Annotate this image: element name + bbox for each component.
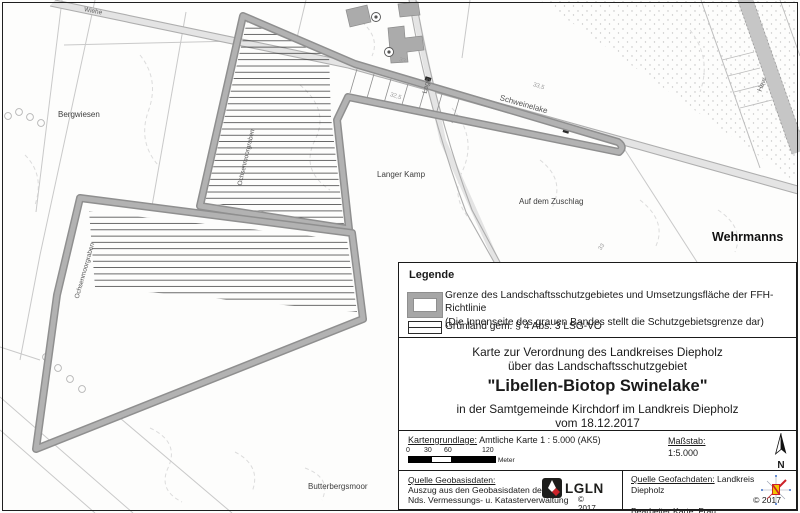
- lsg-band-legend-symbol: [408, 293, 442, 317]
- gruenland-legend-symbol: [408, 321, 442, 334]
- map-basis-label: Kartengrundlage:: [408, 435, 477, 445]
- lgln-logo-text: LGLN: [565, 482, 604, 496]
- legend-box: Legende Grenze des Landschaftsschutzgebi…: [398, 262, 797, 338]
- place-label-butterbergsmoor: Butterbergsmoor: [308, 482, 368, 491]
- legend-band-line1: Grenze des Landschaftsschutzgebietes und…: [445, 289, 796, 316]
- lgln-copyright: © 2017: [578, 495, 604, 513]
- place-label-langer-kamp: Langer Kamp: [377, 170, 425, 179]
- scale-tick: 30: [424, 447, 432, 454]
- scale-bar-graphic: [408, 456, 496, 463]
- editor-label: Bearbeiter Karte:: [631, 506, 696, 513]
- lgln-logo-icon: [542, 478, 562, 498]
- place-label-wehrmanns: Wehrmanns: [712, 230, 783, 244]
- scale-ratio-label: Maßstab:: [668, 435, 706, 447]
- legend-title: Legende: [409, 269, 454, 281]
- title-line2: über das Landschaftsschutzgebiet: [399, 359, 796, 373]
- lgln-logo: LGLN © 2017: [542, 478, 604, 498]
- compass-rose-icon: [759, 473, 793, 507]
- scale-ratio: Maßstab: 1:5.000: [668, 435, 706, 459]
- place-label-auf-dem-zuschlag: Auf dem Zuschlag: [519, 197, 583, 206]
- scale-tick: 120: [482, 447, 494, 454]
- tree-symbols: [5, 109, 86, 393]
- title-line1: Karte zur Verordnung des Landkreises Die…: [399, 345, 796, 359]
- map-basis-value: Amtliche Karte 1 : 5.000 (AK5): [477, 435, 601, 445]
- sources-divider: [622, 471, 623, 509]
- sources-box: Quelle Geobasisdaten: Auszug aus den Geo…: [398, 470, 797, 510]
- scale-bar: 0 30 60 120 Meter: [408, 447, 528, 469]
- map-sheet: Bergwiesen Langer Kamp Auf dem Zuschlag …: [0, 0, 800, 513]
- legend-gruenland-text: Grünland gem. § 4 Abs. 3 LSG-VO: [445, 321, 602, 332]
- geofach-label: Quelle Geofachdaten:: [631, 474, 715, 484]
- map-basis-box: Kartengrundlage: Amtliche Karte 1 : 5.00…: [398, 430, 797, 471]
- main-title: "Libellen-Biotop Swinelake": [399, 377, 796, 396]
- map-basis-line: Kartengrundlage: Amtliche Karte 1 : 5.00…: [408, 435, 601, 445]
- scale-ratio-value: 1:5.000: [668, 447, 706, 459]
- title-line4: vom 18.12.2017: [399, 416, 796, 430]
- scale-tick: 0: [406, 447, 410, 454]
- north-arrow-icon: [772, 432, 790, 456]
- title-box: Karte zur Verordnung des Landkreises Die…: [398, 337, 797, 431]
- scale-unit: Meter: [498, 457, 515, 464]
- title-line3: in der Samtgemeinde Kirchdorf im Landkre…: [399, 402, 796, 416]
- place-label-bergwiesen: Bergwiesen: [58, 110, 100, 119]
- scale-tick: 60: [444, 447, 452, 454]
- north-arrow: N: [771, 432, 791, 471]
